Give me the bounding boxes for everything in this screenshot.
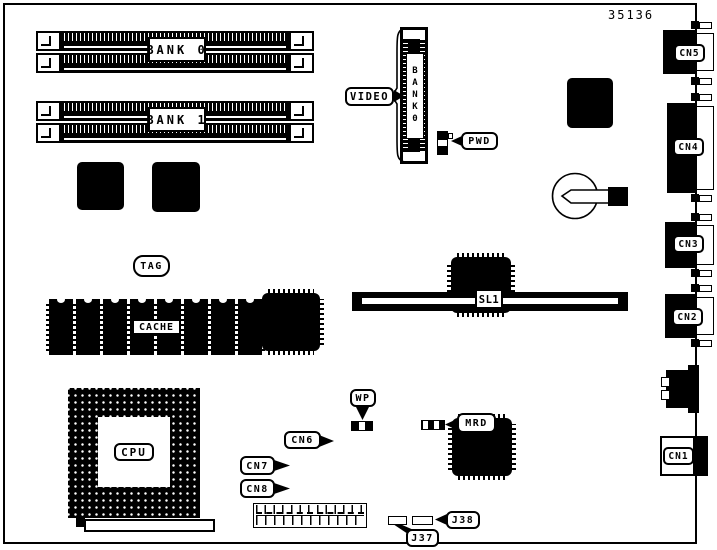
cn6-callout: CN6 bbox=[284, 431, 321, 449]
cpu-label: CPU bbox=[114, 443, 154, 461]
cn2-label: CN2 bbox=[672, 308, 703, 326]
cn1-label: CN1 bbox=[663, 447, 694, 465]
cn8-callout: CN8 bbox=[240, 479, 275, 498]
bank1-label: BANK 1 bbox=[148, 107, 206, 132]
cn1-body bbox=[693, 436, 708, 476]
cn3-label: CN3 bbox=[673, 235, 704, 253]
chip-square-2 bbox=[152, 162, 200, 212]
bank0-label: BANK 0 bbox=[148, 37, 206, 62]
j38-callout: J38 bbox=[446, 511, 480, 529]
simm-clip-left bbox=[36, 53, 61, 73]
video-callout: VIDEO bbox=[345, 87, 394, 106]
simm-clip-right bbox=[289, 123, 314, 143]
simm-clip-right bbox=[289, 101, 314, 121]
cache-sram-chip bbox=[211, 299, 235, 355]
simm-clip-left bbox=[36, 101, 61, 121]
j38-connector bbox=[412, 516, 433, 525]
tag-label: TAG bbox=[133, 255, 170, 277]
simm-clip-right bbox=[289, 53, 314, 73]
wp-jumper bbox=[351, 421, 373, 431]
cache-sram-chip bbox=[238, 299, 262, 355]
cache-sram-chip bbox=[49, 299, 73, 355]
slot-cap bbox=[402, 151, 426, 162]
cache-sram-chip bbox=[184, 299, 208, 355]
part-number: 35136 bbox=[608, 8, 654, 22]
cache-sram-chip bbox=[103, 299, 127, 355]
video-memory-slot: BANK0 bbox=[400, 27, 428, 164]
cache-label: CACHE bbox=[132, 319, 181, 335]
j37-callout: J37 bbox=[406, 529, 439, 547]
simm-clip-left bbox=[36, 31, 61, 51]
pwd-callout: PWD bbox=[461, 132, 498, 150]
mrd-jumper bbox=[421, 420, 445, 430]
pwd-pin1-mark bbox=[448, 133, 453, 139]
wp-callout: WP bbox=[350, 389, 376, 407]
slot-cap bbox=[402, 29, 426, 40]
qfp-chip-1 bbox=[262, 293, 320, 351]
cn5-label: CN5 bbox=[674, 44, 705, 62]
mrd-callout: MRD bbox=[457, 413, 496, 433]
cn4-label: CN4 bbox=[673, 138, 704, 156]
chip-square-3 bbox=[567, 78, 613, 128]
simm-bank0: BANK 0 bbox=[36, 31, 314, 73]
pwd-jumper bbox=[437, 131, 448, 155]
audio-jack-connector bbox=[688, 365, 699, 413]
simm-bank1: BANK 1 bbox=[36, 101, 314, 143]
terminal-block bbox=[253, 503, 367, 528]
socket-lever bbox=[84, 519, 215, 532]
simm-clip-right bbox=[289, 31, 314, 51]
j37-connector bbox=[388, 516, 407, 525]
simm-clip-left bbox=[36, 123, 61, 143]
sl1-label: SL1 bbox=[475, 289, 503, 309]
motherboard-diagram: 35136 BANK 0 BANK 1 BANK0 bbox=[0, 0, 717, 550]
sl1-slot: SL1 bbox=[352, 292, 628, 311]
cn7-callout: CN7 bbox=[240, 456, 275, 475]
cache-sram-chip bbox=[76, 299, 100, 355]
video-bank-label: BANK0 bbox=[406, 53, 424, 139]
chip-square-1 bbox=[77, 162, 124, 210]
